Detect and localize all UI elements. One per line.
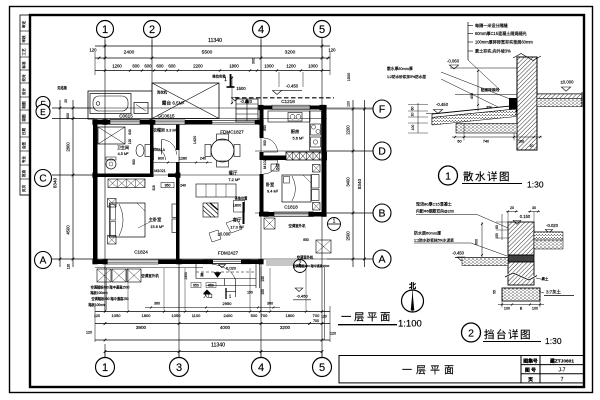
svg-text:批准: 批准 <box>21 170 26 178</box>
svg-text:衣帽间 3.3 M²: 衣帽间 3.3 M² <box>153 128 177 133</box>
svg-text:2400: 2400 <box>124 50 135 56</box>
svg-text:1200: 1200 <box>112 64 122 69</box>
svg-text:17.0 M²: 17.0 M² <box>230 225 244 230</box>
svg-text:每隔一米设分隔缝: 每隔一米设分隔缝 <box>475 22 508 28</box>
svg-text:标准: 标准 <box>21 61 26 69</box>
svg-text:3200: 3200 <box>280 325 291 330</box>
svg-text:20: 20 <box>510 206 514 210</box>
svg-text:洗衣机: 洗衣机 <box>157 90 168 95</box>
svg-text:1200: 1200 <box>286 64 296 69</box>
svg-text:700: 700 <box>313 319 319 323</box>
svg-text:1:2防水砂浆抹5%水泥浆: 1:2防水砂浆抹5%水泥浆 <box>414 238 454 243</box>
svg-text:空调踏板#80 踏中通高2500: 空调踏板#80 踏中通高2500 <box>91 285 130 290</box>
svg-text:2200: 2200 <box>346 125 351 135</box>
svg-text:650: 650 <box>193 284 199 288</box>
svg-text:4500: 4500 <box>66 225 71 235</box>
svg-text:2200: 2200 <box>193 64 203 69</box>
svg-text:60: 60 <box>457 140 461 144</box>
svg-text:950: 950 <box>165 184 171 188</box>
svg-text:2: 2 <box>468 328 474 340</box>
svg-text:餐厅: 餐厅 <box>229 170 238 177</box>
svg-text:卧室: 卧室 <box>266 181 274 188</box>
svg-text:800: 800 <box>132 159 136 165</box>
svg-text:3900: 3900 <box>136 325 147 330</box>
svg-text:650: 650 <box>303 238 309 242</box>
svg-text:300: 300 <box>252 58 256 64</box>
svg-text:0.020: 0.020 <box>226 266 237 271</box>
svg-text:120: 120 <box>89 48 97 53</box>
svg-text:20: 20 <box>530 144 534 148</box>
svg-text:3:7灰土: 3:7灰土 <box>546 289 561 296</box>
svg-text:C0615: C0615 <box>119 114 133 119</box>
svg-text:卫生间: 卫生间 <box>117 144 129 150</box>
svg-text:踏板100mm: 踏板100mm <box>90 290 107 295</box>
svg-text:9.4 M²: 9.4 M² <box>267 189 279 194</box>
svg-text:1:30: 1:30 <box>527 180 544 190</box>
svg-text:M0821A: M0821A <box>151 148 166 152</box>
svg-text:±0.000: ±0.000 <box>560 80 574 85</box>
svg-text:600: 600 <box>168 64 176 69</box>
svg-text:2950: 2950 <box>223 301 233 306</box>
svg-text:800: 800 <box>263 125 267 131</box>
svg-text:1800: 1800 <box>233 204 241 208</box>
svg-text:120: 120 <box>330 332 336 336</box>
svg-text:C1818: C1818 <box>284 205 298 210</box>
svg-text:审定: 审定 <box>21 21 26 29</box>
svg-text:7: 7 <box>561 377 564 383</box>
svg-text:7.2 M²: 7.2 M² <box>228 177 240 182</box>
svg-text:C1218: C1218 <box>281 99 295 104</box>
svg-text:2500: 2500 <box>346 231 351 241</box>
svg-text:2: 2 <box>149 24 155 36</box>
svg-text:专业: 专业 <box>21 156 26 164</box>
svg-text:3200: 3200 <box>285 50 296 56</box>
svg-text:120: 120 <box>347 101 351 107</box>
svg-text:1050: 1050 <box>172 313 182 318</box>
svg-text:FDMC1827: FDMC1827 <box>220 130 244 135</box>
svg-text:北: 北 <box>409 281 416 290</box>
svg-text:740: 740 <box>483 140 489 144</box>
svg-text:4000: 4000 <box>220 325 231 330</box>
svg-text:360: 360 <box>267 302 273 306</box>
svg-text:E: E <box>40 107 46 117</box>
svg-text:挡台详图: 挡台详图 <box>484 328 532 341</box>
svg-text:1000: 1000 <box>308 64 318 69</box>
svg-text:100: 100 <box>411 125 415 131</box>
svg-text:C: C <box>39 173 46 184</box>
svg-text:页: 页 <box>528 376 533 383</box>
svg-text:5: 5 <box>319 362 325 374</box>
svg-text:1:100: 1:100 <box>398 319 422 330</box>
svg-text:-0.450: -0.450 <box>286 84 299 89</box>
svg-text:55: 55 <box>493 290 497 294</box>
svg-text:180: 180 <box>518 140 524 144</box>
svg-text:会签: 会签 <box>21 142 26 150</box>
svg-text:318: 318 <box>152 185 156 191</box>
svg-text:4: 4 <box>258 362 264 374</box>
svg-text:240: 240 <box>180 184 186 188</box>
svg-text:1: 1 <box>333 219 336 225</box>
svg-text:650: 650 <box>208 284 214 288</box>
svg-text:150: 150 <box>247 291 253 295</box>
svg-text:600: 600 <box>144 64 152 69</box>
svg-text:20: 20 <box>411 113 415 117</box>
svg-text:图 号: 图 号 <box>525 367 536 374</box>
svg-text:60mm厚C15混凝土随捣随光: 60mm厚C15混凝土随捣随光 <box>475 30 527 36</box>
svg-text:900: 900 <box>263 140 267 146</box>
svg-text:制图: 制图 <box>21 101 26 109</box>
svg-text:-0.450: -0.450 <box>452 251 465 256</box>
svg-text:空调室外机: 空调室外机 <box>141 273 159 278</box>
svg-text:F: F <box>379 104 385 116</box>
svg-text:M1021: M1021 <box>154 169 166 173</box>
svg-text:4.5 M²: 4.5 M² <box>118 152 129 156</box>
svg-text:1300: 1300 <box>184 272 188 280</box>
svg-text:100mm厚碎砖宽夯实垫层60mm: 100mm厚碎砖宽夯实垫层60mm <box>475 39 533 45</box>
svg-text:空调室外机: 空调室外机 <box>297 255 314 260</box>
svg-text:120: 120 <box>86 331 92 335</box>
svg-text:8340: 8340 <box>53 177 58 188</box>
svg-text:A: A <box>40 255 47 266</box>
svg-text:-0.450: -0.450 <box>436 102 449 107</box>
svg-text:日期: 日期 <box>21 128 26 136</box>
svg-text:60: 60 <box>411 107 415 111</box>
svg-text:5500: 5500 <box>202 50 213 56</box>
svg-text:页次: 页次 <box>21 185 26 193</box>
svg-text:800: 800 <box>158 157 164 161</box>
svg-text:内配Φ6钢筋双向@200: 内配Φ6钢筋双向@200 <box>416 209 454 214</box>
svg-text:0.150: 0.150 <box>520 214 531 219</box>
svg-text:厨房: 厨房 <box>291 128 299 135</box>
svg-text:1: 1 <box>102 24 108 36</box>
svg-text:茶角位置: 茶角位置 <box>235 196 248 201</box>
svg-text:1800: 1800 <box>286 313 296 318</box>
svg-text:20: 20 <box>64 99 68 103</box>
svg-text:640: 640 <box>128 129 132 135</box>
svg-text:500: 500 <box>251 313 258 318</box>
svg-text:80: 80 <box>495 225 499 229</box>
svg-text:空调踏板#80 踏中通高2500: 空调踏板#80 踏中通高2500 <box>293 263 330 268</box>
svg-text:600: 600 <box>156 64 164 69</box>
svg-text:240: 240 <box>200 157 206 161</box>
svg-text:100: 100 <box>504 307 510 311</box>
svg-text:校对: 校对 <box>21 74 26 82</box>
svg-text:一层平面: 一层平面 <box>402 365 458 377</box>
svg-text:5.6 M²: 5.6 M² <box>292 136 304 141</box>
svg-text:120: 120 <box>321 314 327 318</box>
svg-text:3400: 3400 <box>346 177 351 187</box>
svg-text:600: 600 <box>475 239 479 245</box>
svg-text:FDM2427: FDM2427 <box>218 251 239 256</box>
svg-text:空调踏板#80 踏中通高250: 空调踏板#80 踏中通高250 <box>91 296 128 301</box>
svg-text:-0.450: -0.450 <box>296 294 308 299</box>
svg-text:-0.020: -0.020 <box>546 223 559 228</box>
svg-text:设计: 设计 <box>21 88 26 96</box>
svg-text:1: 1 <box>102 362 108 374</box>
svg-text:踏板100mm: 踏板100mm <box>88 302 105 307</box>
svg-text:130: 130 <box>261 276 265 282</box>
svg-text:工艺: 工艺 <box>21 48 26 56</box>
svg-text:1500: 1500 <box>236 86 246 91</box>
svg-text:D: D <box>378 146 386 158</box>
svg-text:3%: 3% <box>486 105 492 110</box>
svg-text:描图: 描图 <box>21 114 26 122</box>
svg-text:1: 1 <box>445 171 451 183</box>
svg-text:1800: 1800 <box>229 64 239 69</box>
svg-text:11340: 11340 <box>211 342 225 348</box>
svg-text:A: A <box>378 254 385 266</box>
svg-text:1000: 1000 <box>264 64 274 69</box>
svg-text:600: 600 <box>132 64 140 69</box>
svg-text:120: 120 <box>328 48 336 53</box>
svg-text:±0.000: ±0.000 <box>218 232 231 237</box>
svg-text:见结施: 见结施 <box>57 85 67 90</box>
svg-text:150: 150 <box>495 233 499 239</box>
svg-text:360: 360 <box>154 302 160 306</box>
svg-text:1100: 1100 <box>192 313 201 318</box>
svg-text:30: 30 <box>532 206 536 210</box>
svg-text:图集号: 图集号 <box>523 358 538 365</box>
svg-text:150: 150 <box>261 289 265 295</box>
svg-text:2400: 2400 <box>224 313 234 318</box>
svg-text:1280: 1280 <box>179 157 187 161</box>
svg-text:3: 3 <box>176 362 182 374</box>
svg-text:M1021: M1021 <box>263 157 267 169</box>
svg-text:1420: 1420 <box>193 136 197 144</box>
svg-text:主卧室: 主卧室 <box>149 216 162 223</box>
svg-text:一层平面: 一层平面 <box>341 312 393 324</box>
svg-text:15.6 M²: 15.6 M² <box>150 224 164 229</box>
svg-text:防水层60mm厚: 防水层60mm厚 <box>414 230 441 236</box>
svg-text:现浇80厚C15混凝土: 现浇80厚C15混凝土 <box>416 201 452 207</box>
svg-text:400: 400 <box>470 93 474 99</box>
svg-text:审核: 审核 <box>21 35 26 43</box>
svg-text:100: 100 <box>532 307 538 311</box>
svg-text:2800: 2800 <box>66 142 71 152</box>
svg-text:1:2防水砂浆抹5%防水层: 1:2防水砂浆抹5%防水层 <box>387 74 426 79</box>
svg-text:8340: 8340 <box>357 178 362 189</box>
svg-text:GC0615: GC0615 <box>157 114 175 119</box>
svg-text:120: 120 <box>67 264 71 270</box>
svg-text:露台 6.5M²: 露台 6.5M² <box>162 100 185 107</box>
svg-text:B: B <box>378 208 385 220</box>
svg-text:空调室外机: 空调室外机 <box>289 223 307 228</box>
svg-text:贴面砖装线: 贴面砖装线 <box>481 87 500 92</box>
svg-text:1050: 1050 <box>112 313 122 318</box>
svg-text:散水厚60mm厚: 散水厚60mm厚 <box>387 66 413 71</box>
svg-text:客厅: 客厅 <box>233 217 242 224</box>
svg-text:1500: 1500 <box>347 73 351 81</box>
svg-text:1: 1 <box>224 77 227 83</box>
svg-text:4: 4 <box>258 24 264 36</box>
svg-text:素土: 素土 <box>542 276 549 281</box>
svg-text:-0.060: -0.060 <box>447 59 460 64</box>
svg-text:素土夯实,向外坡3%: 素土夯实,向外坡3% <box>475 48 511 54</box>
svg-text:1800: 1800 <box>142 313 152 318</box>
svg-text:120: 120 <box>128 139 132 145</box>
svg-text:800: 800 <box>66 113 70 119</box>
svg-text:J-7: J-7 <box>559 368 566 374</box>
svg-text:5: 5 <box>319 24 325 36</box>
svg-text:11340: 11340 <box>208 38 222 44</box>
svg-text:700: 700 <box>261 313 268 318</box>
svg-text:散水详图: 散水详图 <box>463 170 511 183</box>
svg-text:1:30: 1:30 <box>545 336 562 346</box>
svg-text:建ZTJ0601: 建ZTJ0601 <box>549 358 574 365</box>
svg-text:C1824: C1824 <box>134 250 148 255</box>
svg-text:700: 700 <box>313 313 320 318</box>
